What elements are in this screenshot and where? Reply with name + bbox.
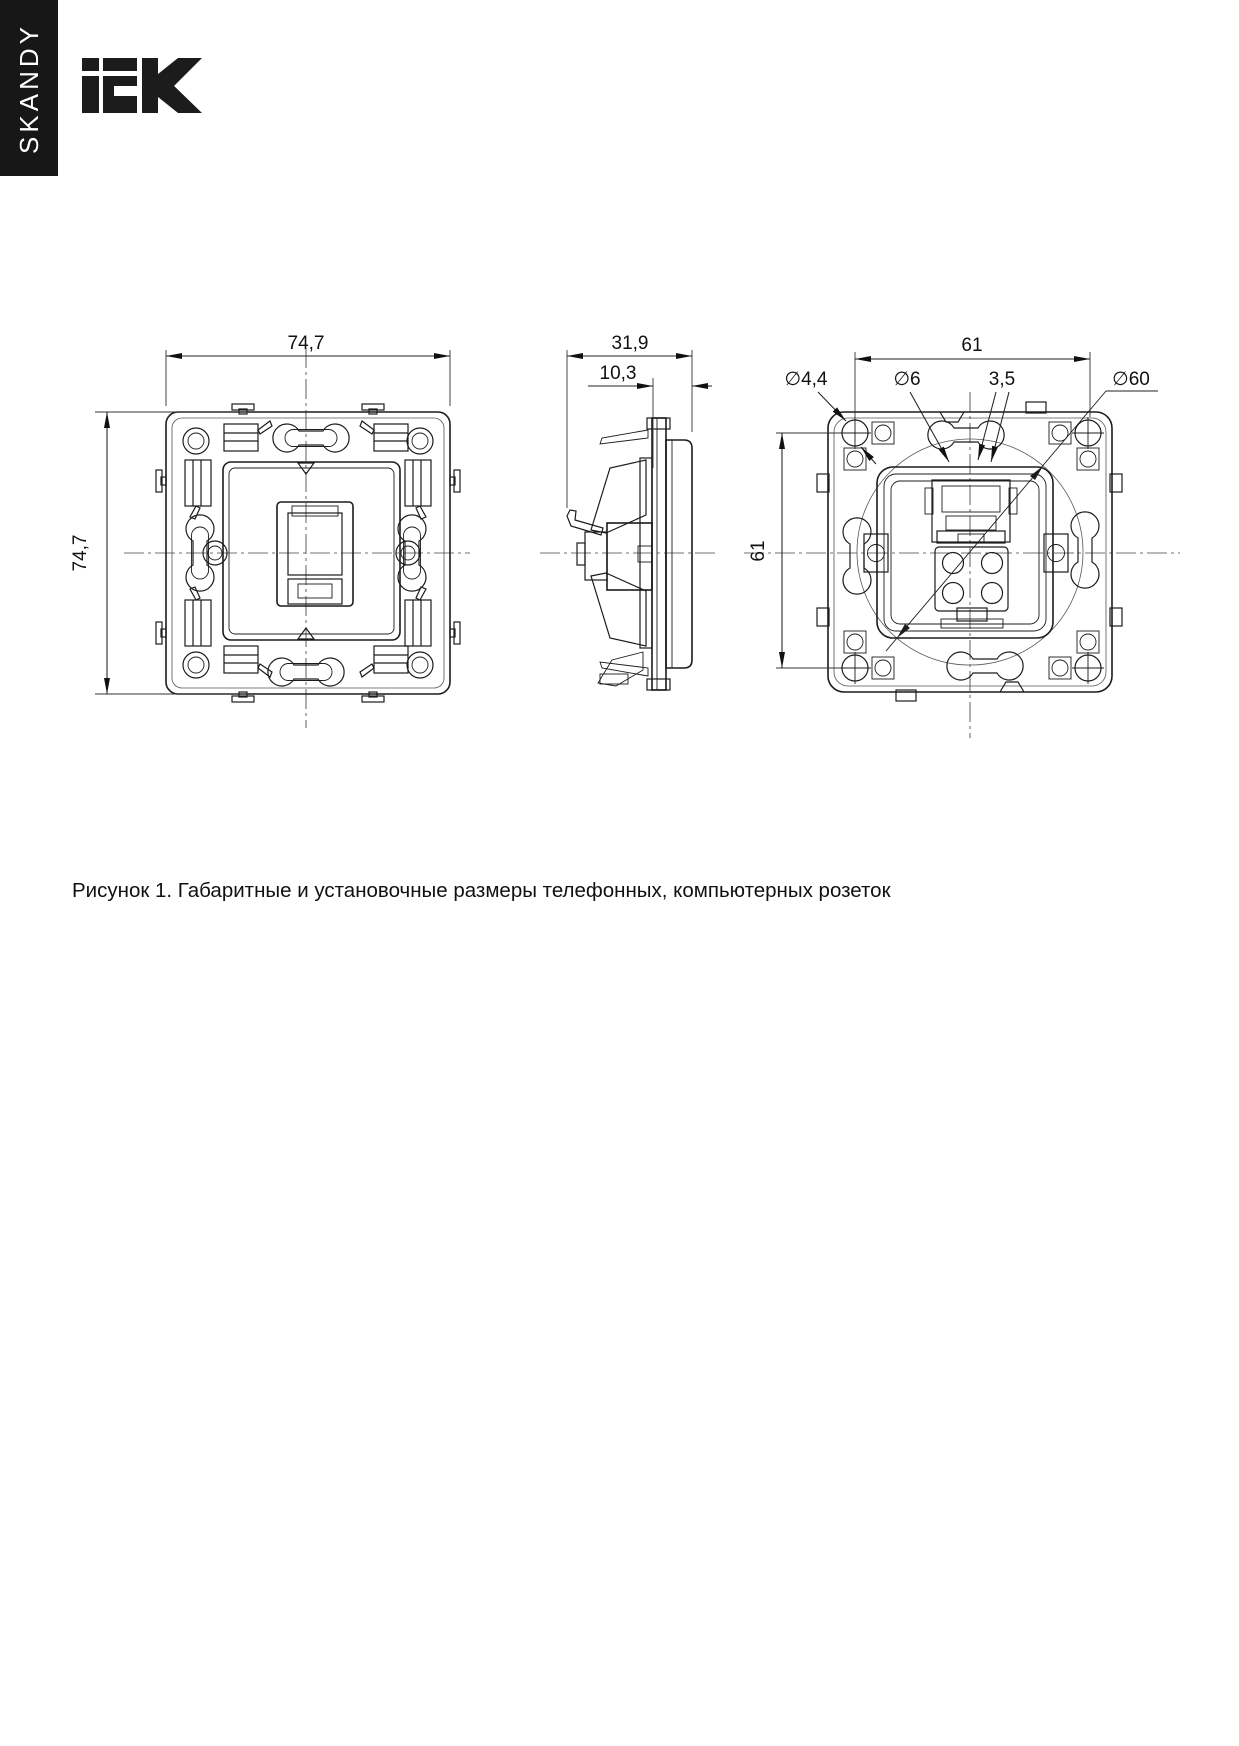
rj-jack-front	[277, 502, 353, 606]
mount-spacing-h-label: 61	[961, 335, 982, 356]
side-depth-dim-label: 31,9	[612, 333, 649, 354]
hole-dia-label: ∅6	[893, 369, 920, 390]
mechanism-side	[567, 430, 652, 686]
box-dia-label: ∅60	[1112, 369, 1150, 390]
frame-tabs-back	[817, 402, 1122, 701]
side-view-drawing: 31,9 10,3	[540, 333, 715, 690]
screw-hole-dia-label: ∅4,4	[785, 369, 828, 390]
side-front-depth-dim-label: 10,3	[600, 363, 637, 384]
document-page: SKANDY	[0, 0, 1239, 1746]
front-width-dim-label: 74,7	[288, 333, 325, 354]
face-plate	[223, 462, 400, 640]
figure-drawing: 74,7 74,7	[0, 0, 1239, 1746]
mount-spacing-v-label: 61	[748, 540, 769, 561]
back-view-drawing: 61 61 ∅4,4 ∅6 3,5 ∅60	[744, 335, 1180, 738]
front-view-drawing: 74,7 74,7	[70, 333, 470, 728]
figure-caption: Рисунок 1. Габаритные и установочные раз…	[72, 879, 891, 903]
front-height-dim-label: 74,7	[70, 535, 91, 572]
back-dimensions: 61 61 ∅4,4 ∅6 3,5 ∅60	[748, 335, 1158, 668]
plate-thickness-label: 3,5	[989, 369, 1015, 390]
iek-logo	[82, 58, 202, 113]
socket-module-back	[864, 467, 1068, 638]
